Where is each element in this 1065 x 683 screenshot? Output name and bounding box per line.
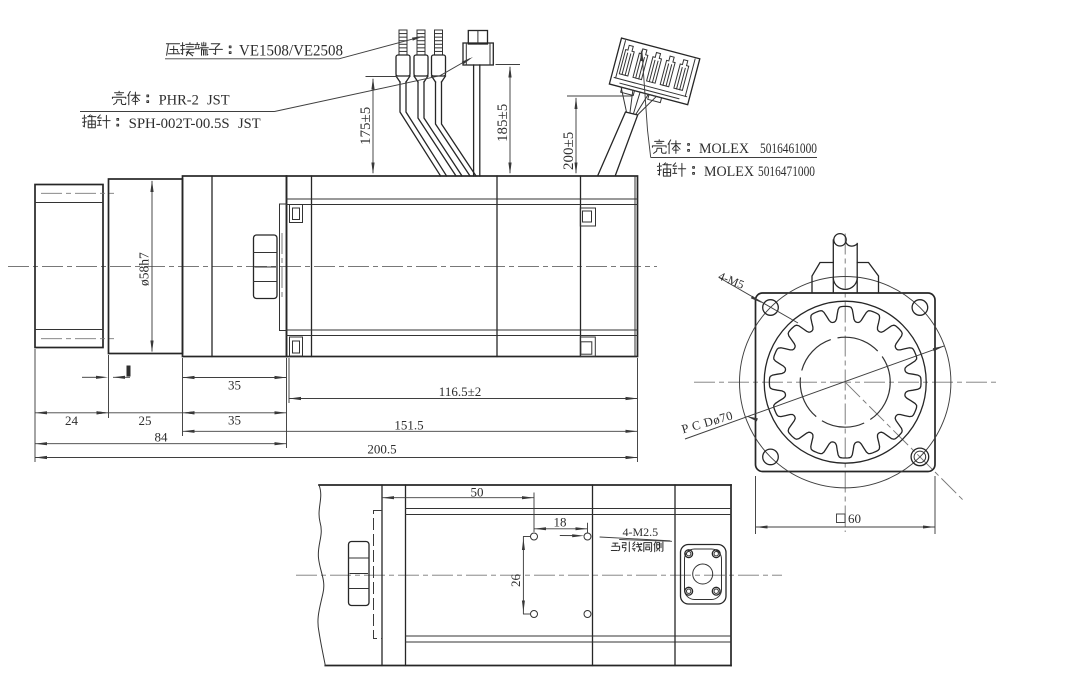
svg-text:JST: JST: [207, 93, 230, 109]
svg-text:18: 18: [554, 515, 567, 530]
svg-text:4-M2.5: 4-M2.5: [623, 525, 659, 539]
svg-text:VE1508/VE2508: VE1508/VE2508: [239, 43, 343, 60]
svg-text:SPH-002T-00.5S: SPH-002T-00.5S: [129, 116, 230, 132]
svg-text:185±5: 185±5: [495, 104, 511, 142]
svg-text:84: 84: [155, 430, 169, 445]
svg-text:151.5: 151.5: [394, 418, 423, 433]
svg-text:MOLEX: MOLEX: [699, 141, 749, 157]
svg-text:26: 26: [508, 574, 523, 588]
svg-text:200±5: 200±5: [561, 132, 577, 170]
svg-text:5016471000: 5016471000: [758, 164, 815, 180]
svg-text:175±5: 175±5: [358, 107, 374, 145]
svg-text:MOLEX: MOLEX: [704, 164, 754, 180]
svg-text:50: 50: [471, 485, 484, 500]
svg-text:35: 35: [228, 378, 241, 393]
svg-text:60: 60: [848, 511, 861, 526]
svg-text:24: 24: [65, 413, 79, 428]
svg-text:116.5±2: 116.5±2: [439, 384, 481, 399]
svg-text:JST: JST: [238, 116, 261, 132]
svg-text:35: 35: [228, 413, 241, 428]
svg-text:25: 25: [139, 413, 152, 428]
svg-text:ø58h7: ø58h7: [137, 252, 152, 286]
svg-text:PHR-2: PHR-2: [159, 93, 199, 109]
svg-text:200.5: 200.5: [367, 442, 396, 457]
svg-text:5016461000: 5016461000: [760, 141, 817, 157]
